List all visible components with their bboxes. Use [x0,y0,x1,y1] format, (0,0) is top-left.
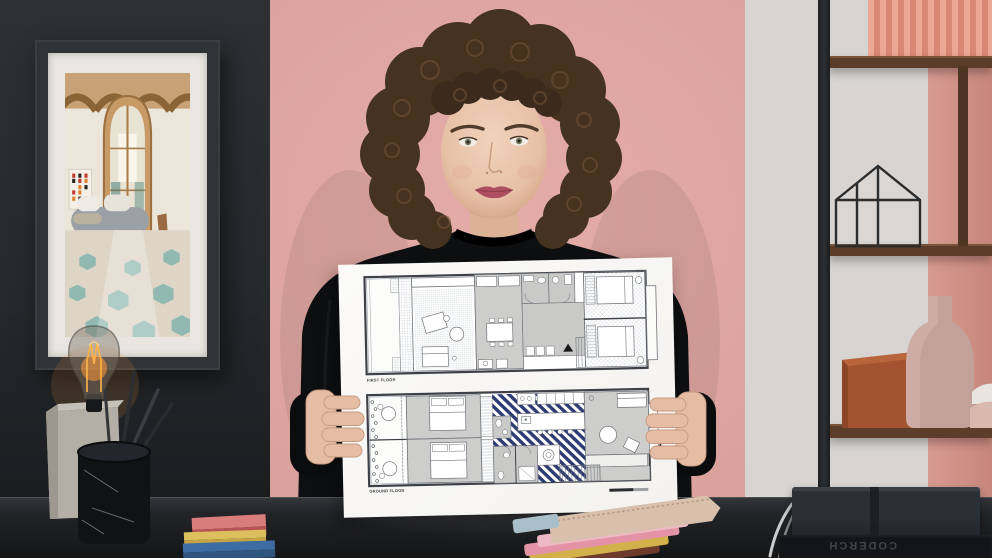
book-bottom: CODERCH [779,535,992,558]
book-top [792,487,980,537]
fabric-swatches [512,491,725,558]
book-elastic-band [870,487,879,537]
sticky-notes-stack [183,514,276,558]
desk-items [0,0,992,558]
photo-scene: FIRST FLOOR GROUND FLOOR [0,0,992,558]
book-spine-text: CODERCH [787,539,897,551]
